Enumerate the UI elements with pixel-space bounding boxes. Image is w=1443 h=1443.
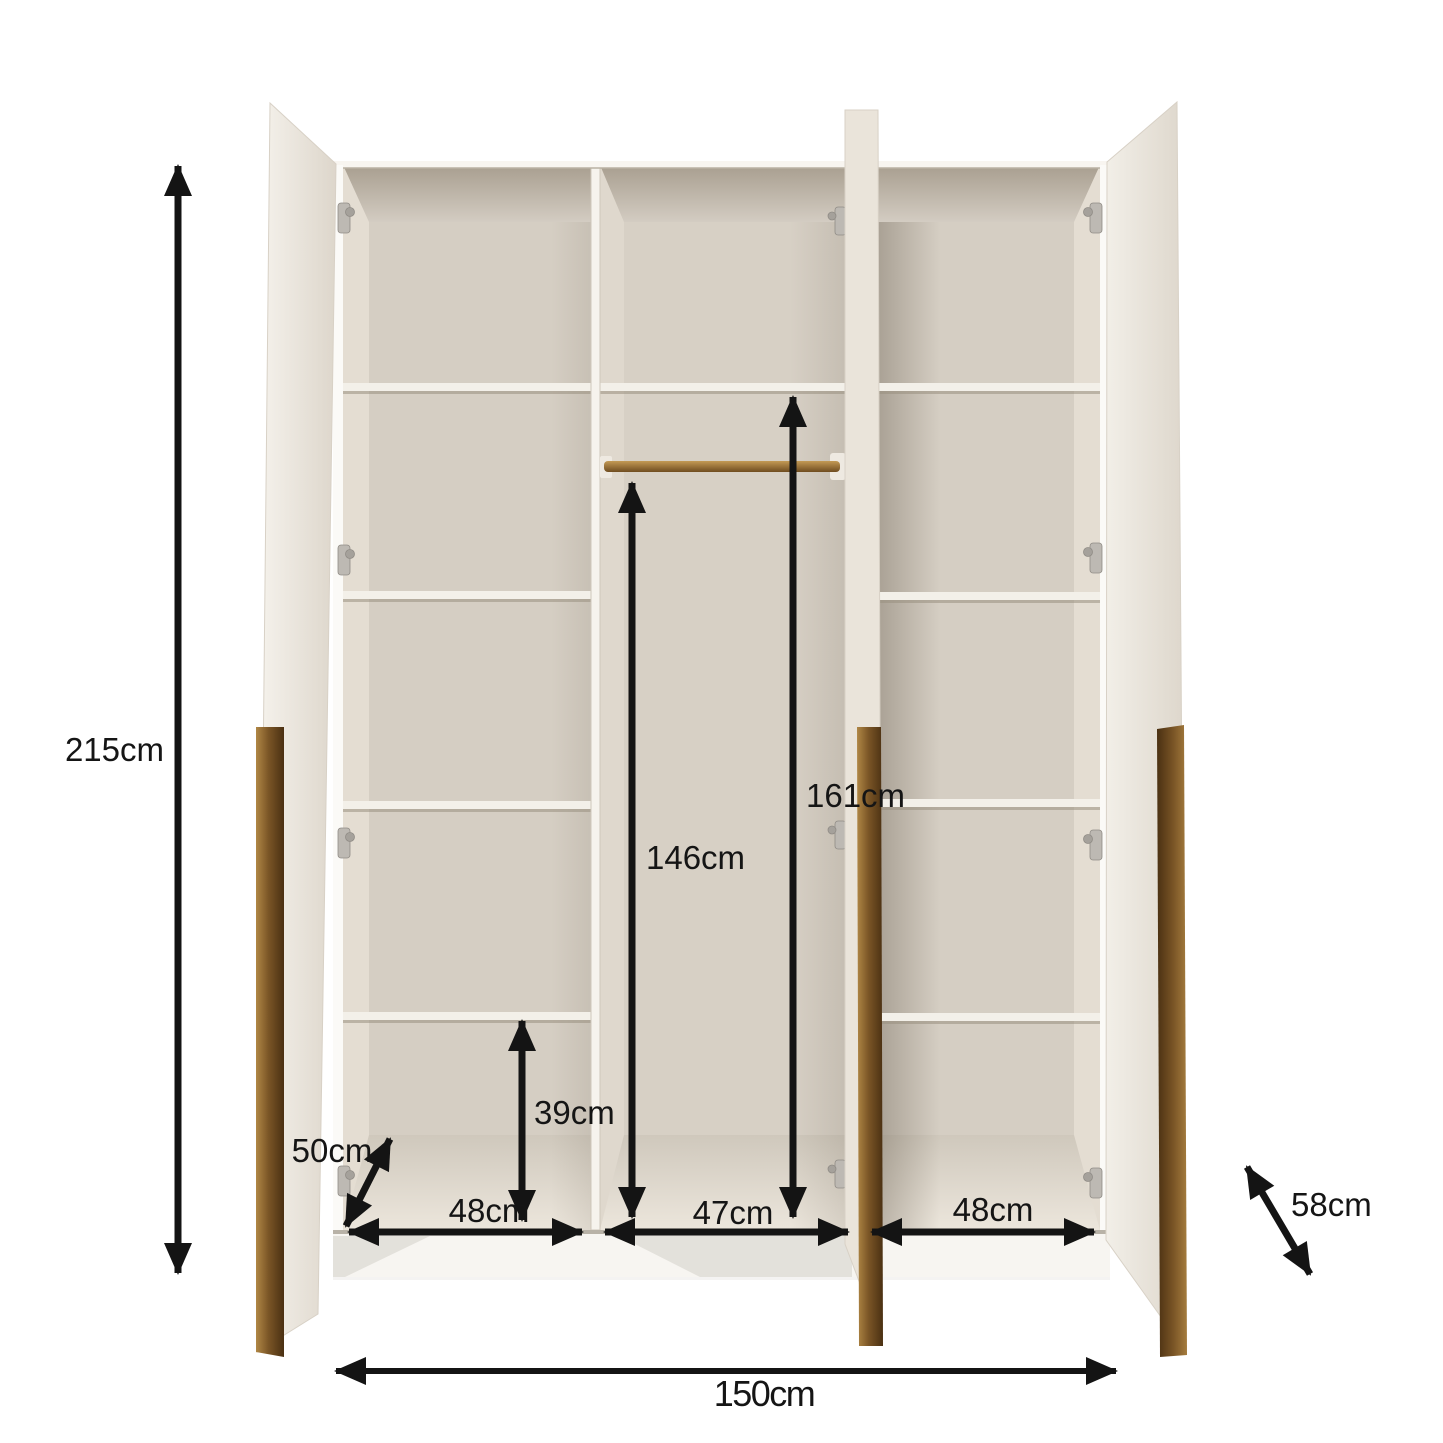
shelf [343,383,591,391]
wardrobe-interior [343,165,1100,1230]
right-section-label: 48cm [953,1191,1034,1228]
height-label: 215cm [65,731,164,768]
shelf [600,383,848,391]
left-ceiling [343,165,591,222]
inner-height-label: 161cm [806,777,905,814]
shelf-shadow [343,599,591,602]
partition-left [591,165,600,1230]
door-width-label: 50cm [292,1132,373,1169]
right-door [1106,102,1187,1357]
shelf [343,1012,591,1020]
shelf [858,592,1100,600]
middle-section-interior [600,165,848,1230]
left-section-shade [551,222,591,1230]
right-inner-side-wall [1074,165,1100,1230]
carcass-top-edge [333,161,1110,168]
middle-inner-side-wall [600,165,624,1230]
rail-bar [604,461,840,472]
shelf [858,1013,1100,1021]
hanging-clearance-label: 146cm [646,839,745,876]
carcass-left-edge [333,165,343,1277]
left-inner-side-wall [343,165,369,1230]
middle-door [845,110,883,1346]
middle-ceiling [600,165,848,222]
right-section-interior [858,165,1100,1230]
left-section-label: 48cm [449,1192,530,1229]
shelf-shadow [858,600,1100,603]
left-section-interior [343,165,591,1230]
depth-label: 58cm [1291,1186,1372,1223]
shelf-shadow [600,391,848,394]
wardrobe-dimension-diagram: 215cm 146cm 161cm 39cm 48cm 47cm 48cm 15… [0,0,1443,1443]
shelf-shadow [343,391,591,394]
left-door-gold-handle [256,727,284,1357]
shelf [858,383,1100,391]
shelf-shadow [858,1021,1100,1024]
right-ceiling [858,165,1100,222]
base-bottom-shadow [333,1277,1110,1280]
diagram-canvas: 215cm 146cm 161cm 39cm 48cm 47cm 48cm 15… [0,0,1443,1443]
shelf-shadow [343,809,591,812]
shelf-shadow [343,1020,591,1023]
middle-section-label: 47cm [693,1194,774,1231]
middle-section-shade [790,222,848,1230]
width-label: 150cm [714,1373,815,1414]
shelf-shadow [858,391,1100,394]
bottom-compartment-label: 39cm [534,1094,615,1131]
shelf [343,801,591,809]
shelf [343,591,591,599]
middle-door-gold-handle [857,727,883,1346]
right-door-gold-handle [1157,725,1187,1357]
